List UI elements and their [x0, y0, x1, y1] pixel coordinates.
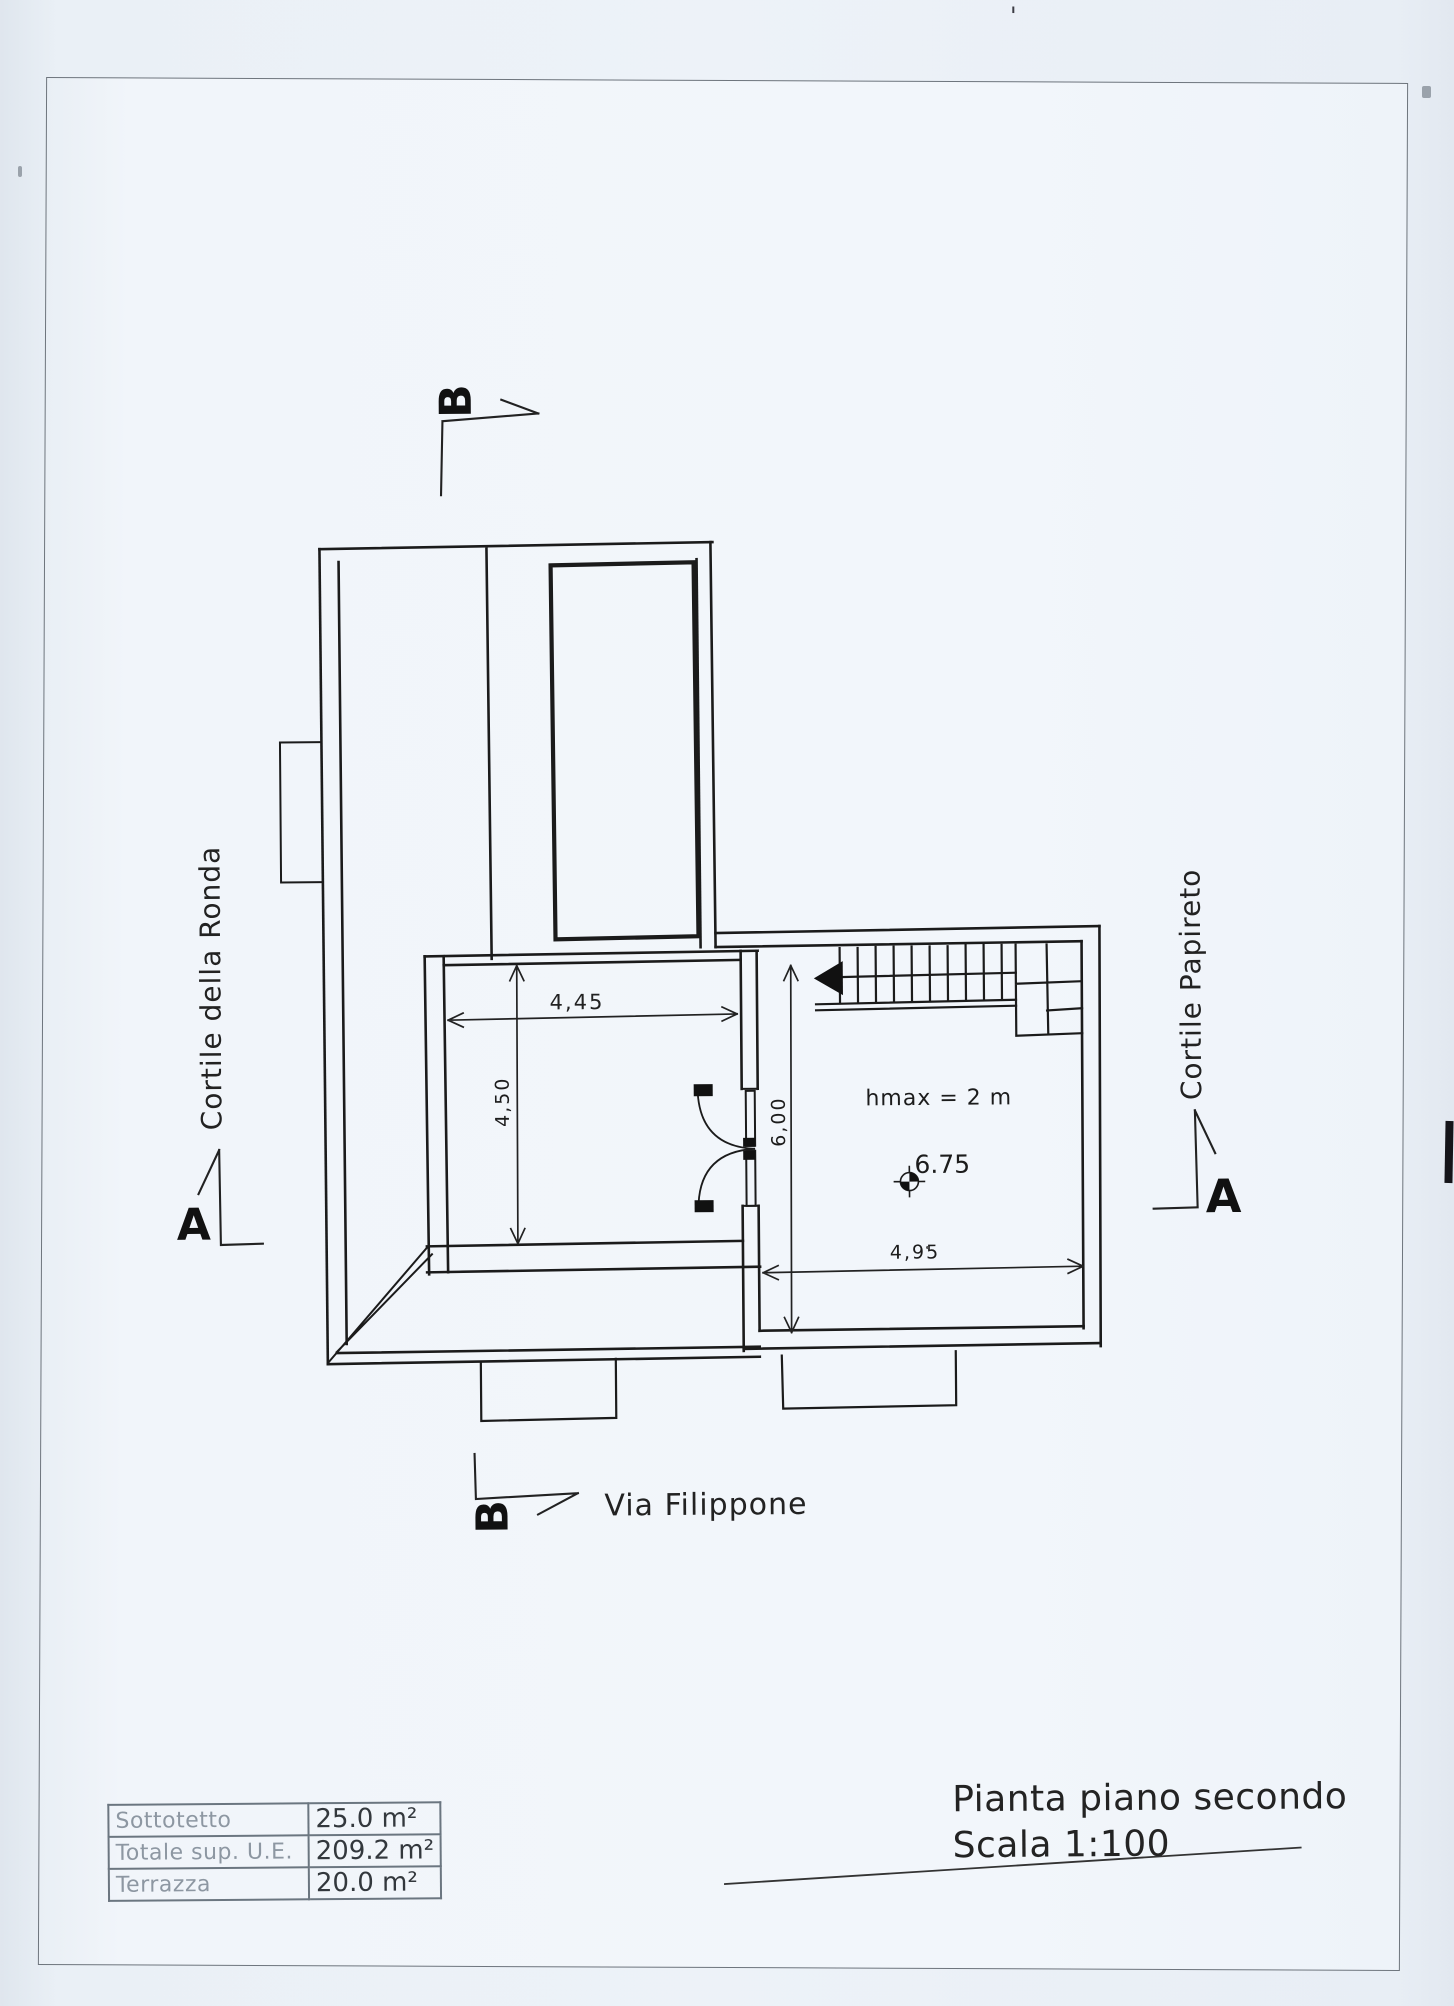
- benchmark-quadrant-sw: [900, 1182, 909, 1191]
- drawing-title: Pianta piano secondo: [952, 1774, 1347, 1823]
- door-hinge-bottom: [695, 1200, 714, 1212]
- spot-level-value: 6.75: [914, 1150, 970, 1179]
- scan-speck: [926, 1246, 929, 1249]
- floor-plan-content: Cortile della Ronda Cortile Papireto Via…: [0, 0, 1454, 2006]
- wall-right-upper-outer: [710, 542, 715, 947]
- hmax-note: hmax = 2 m: [865, 1085, 1012, 1111]
- section-marker-b-bottom: B: [467, 1500, 518, 1534]
- dim-text-left-room-depth: 4,50: [492, 1077, 514, 1127]
- right-room-wall-bottom: [744, 1326, 1101, 1349]
- label-cortile-della-ronda: Cortile della Ronda: [193, 846, 228, 1131]
- wall-top-edge: [319, 542, 712, 549]
- left-room-wall-left: [425, 956, 448, 1274]
- stair-winder: [1016, 944, 1083, 1036]
- scan-speck: [1422, 86, 1431, 98]
- area-label-totale: Totale sup. U.E.: [109, 1835, 309, 1869]
- left-room-wall-top: [425, 951, 758, 966]
- title-block: Pianta piano secondo Scala 1:100: [952, 1774, 1348, 1869]
- drawing-scale: Scala 1:100: [952, 1820, 1347, 1869]
- area-label-sottotetto: Sottotetto: [108, 1803, 308, 1837]
- dim-text-right-room-width: 4,95: [890, 1241, 940, 1263]
- terrace-parapet: [327, 1243, 760, 1364]
- scan-speck-apostrophe: ': [1010, 2, 1017, 30]
- area-summary-table: Sottotetto 25.0 m² Totale sup. U.E. 209.…: [107, 1801, 442, 1902]
- scan-speck: [18, 166, 22, 177]
- table-row: Sottotetto 25.0 m²: [108, 1802, 441, 1837]
- section-marker-b-top: B: [431, 384, 482, 418]
- door-meeting-stile-top: [743, 1138, 755, 1147]
- table-row: Terrazza 20.0 m²: [109, 1866, 442, 1901]
- dim-line-6-00: [782, 965, 801, 1332]
- balcony-left: [481, 1359, 616, 1421]
- dimension-lines: [448, 961, 1084, 1335]
- area-value-totale: 209.2 m²: [309, 1834, 442, 1867]
- table-row: Totale sup. U.E. 209.2 m²: [109, 1834, 442, 1869]
- dim-text-left-room-width: 4,45: [550, 990, 605, 1014]
- left-protrusion: [280, 742, 322, 882]
- double-door: [694, 1084, 759, 1212]
- scan-edge-tick: [1444, 1121, 1453, 1183]
- area-label-terrazza: Terrazza: [109, 1867, 309, 1901]
- wall-left-outer: [319, 549, 327, 1364]
- stair-direction-arrow: [814, 961, 843, 995]
- area-value-sottotetto: 25.0 m²: [308, 1802, 441, 1835]
- right-room-wall-right: [1080, 926, 1102, 1346]
- door-meeting-stile-bottom: [743, 1151, 755, 1160]
- wall-divider: [486, 549, 491, 959]
- wall-left-inner: [339, 562, 347, 1344]
- right-room-wall-top: [715, 926, 1099, 947]
- parapet-miter: [327, 1245, 433, 1363]
- door-hinge-top: [694, 1084, 713, 1096]
- area-value-terrazza: 20.0 m²: [309, 1866, 442, 1899]
- balconies: [481, 1351, 957, 1421]
- parapet-lines: [328, 1347, 760, 1364]
- door-leaf-top: [746, 1091, 755, 1146]
- label-cortile-papireto: Cortile Papireto: [1173, 869, 1208, 1101]
- label-via-filippone: Via Filippone: [604, 1487, 807, 1524]
- dim-text-right-room-depth: 6,00: [768, 1096, 790, 1146]
- balcony-right: [782, 1351, 956, 1408]
- staircase: [814, 944, 1083, 1037]
- left-room-wall-bottom: [427, 1241, 760, 1273]
- stair-centerline: [840, 973, 1016, 977]
- section-marker-a-right: A: [1206, 1169, 1242, 1223]
- section-marker-a-left: A: [177, 1200, 211, 1251]
- shaft-outline: [551, 562, 699, 939]
- stair-run-edges: [816, 1000, 1016, 1011]
